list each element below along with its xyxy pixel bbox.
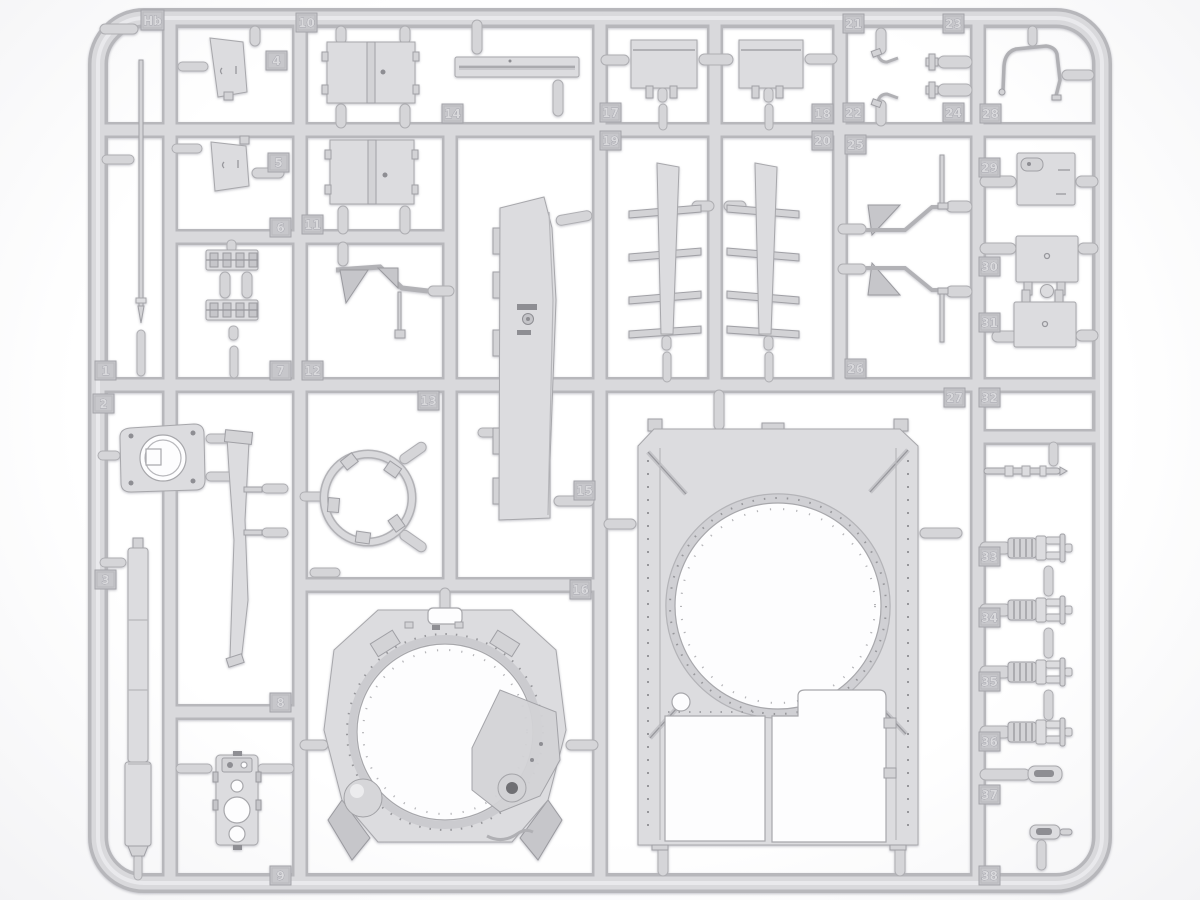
tag-31: 31 xyxy=(979,313,1000,332)
tag-16: 16 xyxy=(570,580,591,599)
svg-text:26: 26 xyxy=(847,362,864,376)
part-20-louver-stack xyxy=(727,163,799,338)
part-3-cylinder xyxy=(125,538,151,856)
part-26-bracket xyxy=(866,263,948,342)
svg-text:27: 27 xyxy=(946,391,963,405)
tag-34: 34 xyxy=(979,608,1000,627)
tag-36: 36 xyxy=(979,732,1000,751)
tag-30: 30 xyxy=(979,257,1000,276)
tag-11: 11 xyxy=(302,215,323,234)
svg-text:37: 37 xyxy=(981,788,998,802)
part-cradle-strip xyxy=(224,430,262,668)
svg-text:Hb: Hb xyxy=(143,14,162,28)
svg-text:15: 15 xyxy=(576,484,593,498)
svg-text:36: 36 xyxy=(981,735,998,749)
part-24-bolt xyxy=(926,82,938,98)
tag-38: 38 xyxy=(979,866,1000,885)
svg-text:29: 29 xyxy=(981,161,998,175)
svg-text:1: 1 xyxy=(101,364,109,378)
tag-18: 18 xyxy=(812,104,833,123)
svg-text:10: 10 xyxy=(298,16,315,30)
part-32-linkage-rod xyxy=(984,466,1067,476)
tag-24: 24 xyxy=(943,103,964,122)
svg-text:16: 16 xyxy=(572,583,589,597)
tag-5: 5 xyxy=(268,153,289,172)
svg-text:4: 4 xyxy=(272,54,280,68)
tag-23: 23 xyxy=(943,14,964,33)
part-12-angled-bracket xyxy=(336,267,428,338)
part-29-box-plate xyxy=(1017,153,1075,205)
tag-14: 14 xyxy=(442,104,463,123)
svg-text:21: 21 xyxy=(845,17,862,31)
svg-text:12: 12 xyxy=(304,364,321,378)
svg-text:24: 24 xyxy=(945,106,962,120)
part-37-latch xyxy=(1028,766,1062,782)
svg-text:7: 7 xyxy=(276,364,284,378)
tag-8: 8 xyxy=(270,693,291,712)
part-13-ring xyxy=(324,453,412,544)
tag-1: 1 xyxy=(95,361,116,380)
svg-text:17: 17 xyxy=(602,106,619,120)
svg-text:31: 31 xyxy=(981,316,998,330)
svg-text:14: 14 xyxy=(444,107,461,121)
tag-25: 25 xyxy=(845,135,866,154)
part-10-double-hatch xyxy=(322,42,419,103)
tag-32: 32 xyxy=(979,388,1000,407)
part-25-bracket xyxy=(866,155,948,235)
part-31-box-plate xyxy=(1014,285,1076,348)
part-11-double-hatch xyxy=(325,140,418,204)
tag-12: 12 xyxy=(302,361,323,380)
svg-text:23: 23 xyxy=(945,17,962,31)
tag-15: 15 xyxy=(574,481,595,500)
tag-21: 21 xyxy=(843,14,864,33)
part-38-fitting xyxy=(1030,825,1072,839)
part-28-grab-handle xyxy=(999,46,1061,100)
tag-9: 9 xyxy=(270,866,291,885)
svg-text:19: 19 xyxy=(602,134,619,148)
svg-text:38: 38 xyxy=(981,869,998,883)
tag-7: 7 xyxy=(270,361,291,380)
tag-17: 17 xyxy=(600,103,621,122)
tag-13: 13 xyxy=(418,391,439,410)
part-16-turret-ring xyxy=(324,608,566,860)
svg-text:32: 32 xyxy=(981,391,998,405)
styrene-sprue: Hb 10 21 23 4 14 17 18 22 24 28 19 20 25… xyxy=(0,0,1200,900)
svg-text:2: 2 xyxy=(99,397,107,411)
sprue-photo-canvas: Hb 10 21 23 4 14 17 18 22 24 28 19 20 25… xyxy=(0,0,1200,900)
part-1-rod xyxy=(136,60,146,323)
tag-3: 3 xyxy=(95,570,116,589)
tag-28: 28 xyxy=(980,104,1001,123)
tag-33: 33 xyxy=(979,547,1000,566)
svg-text:30: 30 xyxy=(981,260,998,274)
part-6-bogie xyxy=(206,250,258,270)
tag-10: 10 xyxy=(296,13,317,32)
svg-text:11: 11 xyxy=(304,218,321,232)
svg-text:25: 25 xyxy=(847,138,864,152)
tag-4: 4 xyxy=(266,51,287,70)
part-27-turret-roof xyxy=(638,419,918,850)
part-8-backplate xyxy=(213,751,261,850)
svg-text:34: 34 xyxy=(981,611,998,625)
part-5-bracket-plate xyxy=(211,136,249,191)
part-23-bolt xyxy=(926,54,938,70)
tag-27: 27 xyxy=(944,388,965,407)
svg-text:18: 18 xyxy=(814,107,831,121)
tag-20: 20 xyxy=(812,131,833,150)
tag-35: 35 xyxy=(979,672,1000,691)
svg-text:3: 3 xyxy=(101,573,109,587)
tag-22: 22 xyxy=(843,103,864,122)
part-15-long-panel xyxy=(493,197,556,520)
tag-37: 37 xyxy=(979,785,1000,804)
tag-6: 6 xyxy=(270,218,291,237)
svg-text:13: 13 xyxy=(420,394,437,408)
part-4-bracket-plate xyxy=(210,38,247,100)
svg-text:22: 22 xyxy=(845,106,862,120)
tag-26: 26 xyxy=(845,359,866,378)
svg-text:33: 33 xyxy=(981,550,998,564)
part-14-flat-bar xyxy=(455,57,579,77)
svg-text:20: 20 xyxy=(814,134,831,148)
svg-text:6: 6 xyxy=(276,221,284,235)
svg-text:9: 9 xyxy=(276,869,284,883)
svg-text:5: 5 xyxy=(274,156,282,170)
svg-text:8: 8 xyxy=(276,696,284,710)
tag-2: 2 xyxy=(93,394,114,413)
part-2-mount-plate xyxy=(120,424,205,492)
tag-hb: Hb xyxy=(141,10,164,30)
svg-text:35: 35 xyxy=(981,675,998,689)
part-19-louver-stack xyxy=(629,163,701,338)
tag-29: 29 xyxy=(979,158,1000,177)
part-7-bogie xyxy=(206,300,258,320)
svg-text:28: 28 xyxy=(982,107,999,121)
tag-19: 19 xyxy=(600,131,621,150)
